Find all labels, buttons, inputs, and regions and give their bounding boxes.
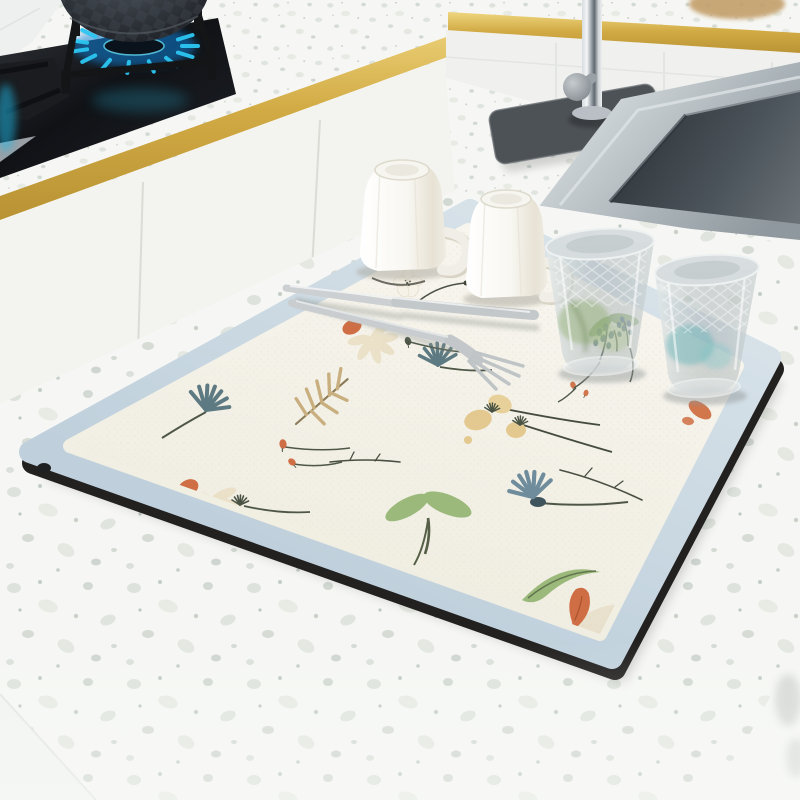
kitchen-product-photo (0, 0, 800, 800)
depth-of-field-veil (0, 640, 800, 800)
mat-corner-dot (37, 463, 51, 473)
kitchen-scene (0, 0, 800, 800)
faucet-handle (563, 73, 591, 101)
faucet-base (572, 106, 612, 120)
